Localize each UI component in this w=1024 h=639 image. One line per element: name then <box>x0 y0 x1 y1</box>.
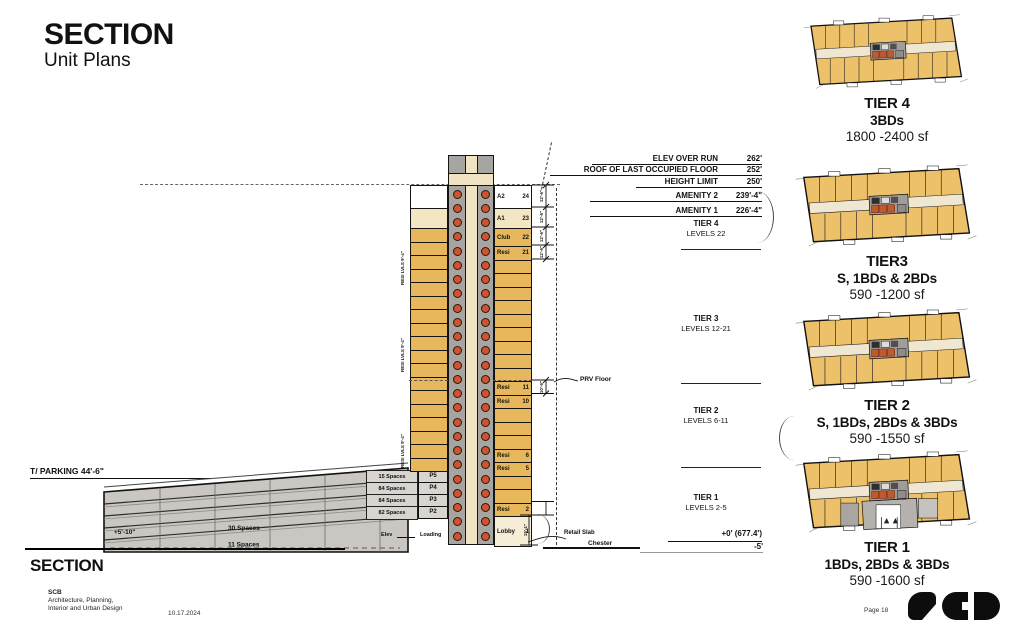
floor-text: Resi <box>497 250 510 256</box>
elevator-marker <box>453 204 462 213</box>
elevator-marker <box>453 446 462 455</box>
elevator-marker <box>481 332 490 341</box>
tier-separator-1 <box>681 249 761 250</box>
date-label: 10.17.2024 <box>168 610 201 617</box>
floor-row <box>411 323 447 337</box>
elevator-marker <box>453 190 462 199</box>
elevator-marker <box>453 460 462 469</box>
plan-size-range: 590 -1600 sf <box>772 573 1002 588</box>
elevator-marker <box>453 304 462 313</box>
elevator-marker <box>481 532 490 541</box>
plan-tier-name: TIER 4 <box>772 95 1002 112</box>
elevator-marker <box>453 247 462 256</box>
elevator-marker <box>481 190 490 199</box>
plan-tier-name: TIER 2 <box>772 397 1002 414</box>
plan-size-range: 1800 -2400 sf <box>772 129 1002 144</box>
elevator-marker <box>481 418 490 427</box>
floor-row <box>411 363 447 377</box>
floor-text: A1 <box>497 216 505 222</box>
elevator-marker <box>481 304 490 313</box>
datum-minus5-label: -5' <box>754 542 763 551</box>
plan-unit-types: 1BDs, 2BDs & 3BDs <box>772 557 1002 572</box>
page-number: Page 18 <box>864 607 888 614</box>
datum-zero-line <box>668 541 762 542</box>
floor-plan-drawing <box>795 164 980 249</box>
elevator-marker <box>481 289 490 298</box>
floor-row <box>411 282 447 296</box>
svg-text:12'-6": 12'-6" <box>539 246 544 258</box>
roof-last-floor-value: 252' <box>726 165 762 174</box>
floor-text: Resi <box>497 466 510 472</box>
firm-name: SCB <box>48 589 62 596</box>
tier-3-levels-block: TIER 3 LEVELS 12-21 <box>650 314 762 333</box>
elevator-marker <box>481 403 490 412</box>
elevator-marker <box>481 460 490 469</box>
elev-over-run-label: ELEV OVER RUN <box>653 154 718 163</box>
elevator-marker <box>453 517 462 526</box>
svg-text:12'-6": 12'-6" <box>539 211 544 223</box>
floor-row <box>411 336 447 350</box>
tier-separator-2 <box>681 383 761 384</box>
unit-plan-card: TIER 4 3BDs 1800 -2400 sf <box>772 14 1002 144</box>
section-sheet: SECTION Unit Plans T/ PARKING 44'-6" +5'… <box>0 0 1024 639</box>
floor-row <box>411 269 447 283</box>
tier-2-name: TIER 2 <box>650 406 762 415</box>
svg-text:12'-6": 12'-6" <box>539 190 544 202</box>
tier-2-levels: LEVELS 6-11 <box>650 416 762 425</box>
elevator-marker <box>481 389 490 398</box>
elevator-marker <box>481 503 490 512</box>
elev-leader-line <box>397 537 415 538</box>
floor-row <box>411 390 447 404</box>
page-title-block: SECTION Unit Plans <box>44 20 174 72</box>
plan-size-range: 590 -1200 sf <box>772 287 1002 302</box>
elevator-marker <box>453 261 462 270</box>
space-count-box: 82 Spaces <box>366 506 418 519</box>
parking-level-box: P2 <box>418 506 448 519</box>
elevator-marker <box>481 218 490 227</box>
resi2-dim-chain <box>532 502 554 516</box>
floor-row <box>411 186 447 208</box>
elev-over-run-row: ELEV OVER RUN 262' <box>592 154 762 165</box>
logo-glyph-c <box>942 592 968 620</box>
elevator-marker <box>453 289 462 298</box>
tier-1-levels: LEVELS 2-5 <box>650 503 762 512</box>
roof-last-floor-row: ROOF OF LAST OCCUPIED FLOOR 252' <box>550 165 762 176</box>
floor-row <box>411 296 447 310</box>
floor-row <box>411 228 447 242</box>
scb-logo <box>906 590 1006 624</box>
unit-plan-card: TIER 2 S, 1BDs, 2BDs & 3BDs 590 -1550 sf <box>772 308 1002 446</box>
floor-row <box>411 458 447 472</box>
tier-4-name: TIER 4 <box>650 219 762 228</box>
tower-left-wing <box>410 185 448 472</box>
floor-text: Resi <box>497 453 510 459</box>
core-middle-column <box>465 156 478 544</box>
elevator-marker <box>453 218 462 227</box>
elevator-marker <box>453 332 462 341</box>
datum-zero-label: +0' (677.4') <box>722 529 763 538</box>
elevator-marker <box>481 375 490 384</box>
elevator-marker <box>481 261 490 270</box>
logo-glyph-b <box>974 592 1000 620</box>
elevator-marker <box>481 489 490 498</box>
elevator-marker <box>453 475 462 484</box>
floor-text: Club <box>497 235 510 241</box>
plan-unit-types: 3BDs <box>772 113 1002 128</box>
elevator-marker <box>453 403 462 412</box>
plan-size-range: 590 -1550 sf <box>772 431 1002 446</box>
amenity-1-label: AMENITY 1 <box>675 206 718 215</box>
side-dim-upper: RESI LVLS 9'-4" <box>400 251 405 285</box>
floor-row <box>411 417 447 431</box>
elev-label: Elev <box>381 532 392 538</box>
elevator-marker <box>481 318 490 327</box>
loading-label: Loading <box>420 532 441 538</box>
tier-separator-3 <box>681 467 761 468</box>
plan-tier-name: TIER 1 <box>772 539 1002 556</box>
plan-tier-name: TIER3 <box>772 253 1002 270</box>
floor-text: Lobby <box>497 529 515 535</box>
prv-floor-label: PRV Floor <box>580 376 611 383</box>
floor-row <box>411 309 447 323</box>
floor-row <box>411 444 447 458</box>
elevator-marker <box>481 475 490 484</box>
firm-block: SCB Architecture, Planning, Interior and… <box>48 589 122 613</box>
core-roof-band <box>449 173 493 186</box>
elev-over-run-value: 262' <box>726 154 762 163</box>
amenity-2-label: AMENITY 2 <box>675 191 718 200</box>
elevator-marker <box>453 318 462 327</box>
tier-4-levels-block: TIER 4 LEVELS 22 <box>650 219 762 238</box>
page-title: SECTION <box>44 20 174 50</box>
floor-row <box>411 242 447 256</box>
elevator-marker <box>453 375 462 384</box>
elevator-marker <box>453 346 462 355</box>
elevator-marker <box>453 232 462 241</box>
top-dim-texts: 12'-6" 12'-6" 12'-6" 12'-6" <box>539 190 544 258</box>
page-subtitle: Unit Plans <box>44 50 174 72</box>
tower-core <box>448 155 494 545</box>
elevator-marker <box>453 432 462 441</box>
floor-row <box>411 255 447 269</box>
prv-dim-text: 10'-6" <box>539 381 544 393</box>
elevator-marker <box>481 232 490 241</box>
elevator-marker <box>453 532 462 541</box>
roof-last-floor-label: ROOF OF LAST OCCUPIED FLOOR <box>584 165 718 174</box>
amenity-1-row: AMENITY 1 226'-4" <box>590 206 762 217</box>
floor-plan-drawing <box>795 308 980 393</box>
street-name-label: Chester <box>588 540 612 547</box>
elevator-marker <box>453 275 462 284</box>
floor-text: Resi <box>497 385 510 391</box>
floor-text: Resi <box>497 399 510 405</box>
elevator-marker <box>481 247 490 256</box>
firm-line2: Interior and Urban Design <box>48 605 122 612</box>
elevator-marker <box>453 389 462 398</box>
minus5-grade-line <box>640 552 763 553</box>
side-dim-lower: RESI LVLS 9'-4" <box>400 434 405 468</box>
height-limit-label: HEIGHT LIMIT <box>665 177 718 186</box>
tier-4-levels: LEVELS 22 <box>650 229 762 238</box>
parking-space-counts: 15 Spaces84 Spaces84 Spaces82 Spaces <box>366 471 418 520</box>
floor-text: Resi <box>497 507 510 513</box>
floor-row <box>411 431 447 445</box>
unit-plan-card: TIER 1 1BDs, 2BDs & 3BDs 590 -1600 sf <box>772 450 1002 588</box>
deck-30-spaces-label: 30 Spaces <box>228 525 260 532</box>
section-footer-title: SECTION <box>30 556 103 576</box>
elevator-marker <box>453 503 462 512</box>
logo-glyph-s <box>908 592 936 620</box>
side-dim-middle: RESI LVLS 9'-4" <box>400 338 405 372</box>
plan-unit-types: S, 1BDs & 2BDs <box>772 271 1002 286</box>
elevator-marker <box>481 346 490 355</box>
floor-plan-drawing <box>803 14 971 91</box>
firm-line1: Architecture, Planning, <box>48 597 113 604</box>
floor-row <box>411 404 447 418</box>
lobby-dim-text: 15'-1" <box>523 524 528 536</box>
retail-slab-label: Retail Slab <box>564 530 595 536</box>
elevator-marker <box>481 446 490 455</box>
tier-2-levels-block: TIER 2 LEVELS 6-11 <box>650 406 762 425</box>
tier-1-name: TIER 1 <box>650 493 762 502</box>
elevator-marker <box>453 489 462 498</box>
deck-clearance-label: +5'-10" <box>114 529 135 536</box>
tier-1-levels-block: TIER 1 LEVELS 2-5 <box>650 493 762 512</box>
elevator-marker <box>453 361 462 370</box>
prv-dash-left <box>409 380 448 381</box>
elevator-marker <box>481 517 490 526</box>
ground-line-left <box>25 548 345 550</box>
parking-level-labels: P5P4P3P2 <box>418 471 448 519</box>
elevator-marker <box>481 432 490 441</box>
floor-text: A2 <box>497 194 505 200</box>
floor-plan-drawing <box>795 450 980 535</box>
tier-3-name: TIER 3 <box>650 314 762 323</box>
plan-unit-types: S, 1BDs, 2BDs & 3BDs <box>772 415 1002 430</box>
elevator-marker <box>481 204 490 213</box>
height-limit-value: 250' <box>726 177 762 186</box>
street-slab-line <box>543 547 640 549</box>
amenity-2-row: AMENITY 2 239'-4" <box>590 191 762 202</box>
floor-row <box>411 208 447 228</box>
svg-text:12'-6": 12'-6" <box>539 230 544 242</box>
height-limit-row: HEIGHT LIMIT 250' <box>636 177 762 188</box>
elevator-marker <box>453 418 462 427</box>
tier-3-levels: LEVELS 12-21 <box>650 324 762 333</box>
floor-row <box>411 350 447 364</box>
elevator-marker <box>481 275 490 284</box>
elevator-marker <box>481 361 490 370</box>
unit-plan-card: TIER3 S, 1BDs & 2BDs 590 -1200 sf <box>772 164 1002 302</box>
